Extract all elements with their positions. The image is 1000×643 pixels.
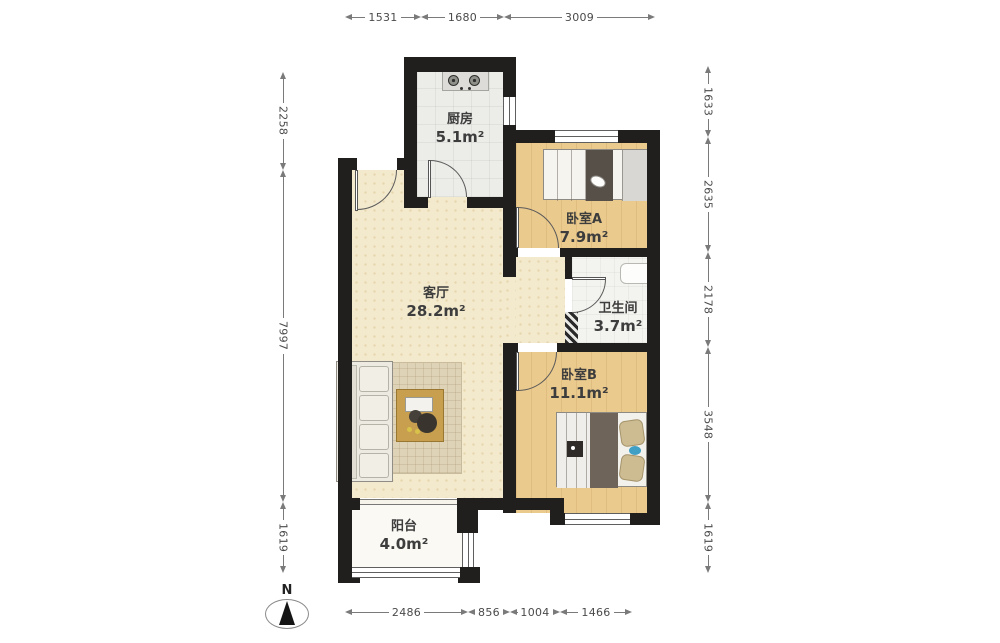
bathroom-door-leaf	[572, 277, 606, 280]
dimension-top-1: 1531	[345, 10, 421, 24]
coffee-table	[396, 389, 444, 442]
room-label-bedroom-b: 卧室B 11.1m²	[522, 368, 636, 404]
dimension-left-1: 2258	[276, 72, 290, 170]
dimension-bottom-2: 856	[468, 605, 510, 619]
wall	[338, 498, 360, 510]
bedroom-a-area: 7.9m²	[527, 228, 641, 248]
wall	[560, 248, 660, 257]
dimension-value: 2486	[389, 607, 424, 618]
room-label-living-room: 客厅 28.2m²	[378, 286, 494, 322]
living-room-area: 28.2m²	[378, 302, 494, 322]
dimension-right-1: 1633	[701, 66, 715, 137]
wall	[457, 498, 478, 533]
bedroom-b-name: 卧室B	[522, 368, 636, 384]
wall	[467, 197, 516, 208]
bedroom-a-name: 卧室A	[527, 212, 641, 228]
bedroom-b-door-leaf	[516, 352, 519, 391]
bed-sheet	[544, 150, 586, 201]
room-label-bedroom-a: 卧室A 7.9m²	[527, 212, 641, 248]
wall	[458, 567, 480, 583]
compass-ellipse	[265, 599, 309, 629]
dimension-value: 1633	[703, 84, 714, 119]
bedroom-a-door-leaf	[516, 207, 519, 248]
dimension-left-2: 7997	[276, 170, 290, 502]
wardrobe-handle	[567, 441, 583, 457]
dimension-right-5: 1619	[701, 502, 715, 573]
dimension-value: 856	[475, 607, 503, 618]
burner	[469, 75, 480, 86]
dimension-right-2: 2635	[701, 137, 715, 252]
bed-bedroom-b	[556, 412, 647, 487]
north-label: N	[265, 584, 309, 597]
dimension-top-3: 3009	[504, 10, 655, 24]
window-bedroom-b	[565, 513, 630, 525]
dimension-value: 1531	[365, 12, 400, 23]
floor-plan: 厨房 5.1m² 卧室A 7.9m² 客厅 28.2m² 卫生间 3.7m² 卧…	[0, 0, 1000, 643]
kitchen-door-leaf	[428, 160, 431, 198]
bed-pillow	[618, 453, 645, 482]
dimension-right-3: 2178	[701, 252, 715, 347]
kettle	[417, 413, 437, 433]
dimension-bottom-4: 1466	[560, 605, 632, 619]
bed-bedroom-a	[543, 149, 647, 200]
bed-pillow	[618, 418, 645, 447]
dimension-value: 1466	[578, 607, 613, 618]
balcony-name: 阳台	[354, 519, 454, 535]
wall	[630, 513, 660, 525]
wall	[404, 57, 516, 72]
dimension-value: 2258	[278, 103, 289, 138]
dimension-value: 7997	[278, 318, 289, 353]
compass: N	[265, 584, 309, 629]
corridor-floor	[516, 257, 565, 343]
living-room-name: 客厅	[378, 286, 494, 302]
wall	[503, 248, 516, 277]
dimension-value: 3548	[703, 407, 714, 442]
cup	[415, 429, 420, 434]
window-bedroom-a	[555, 130, 618, 143]
sofa-cushion	[359, 424, 389, 450]
stove	[442, 71, 489, 91]
wall	[557, 343, 660, 352]
dimension-right-4: 3548	[701, 347, 715, 502]
dimension-value: 2635	[703, 177, 714, 212]
wall	[503, 72, 516, 97]
bedroom-b-area: 11.1m²	[522, 384, 636, 404]
entry-door-leaf	[355, 170, 358, 211]
dimension-top-2: 1680	[421, 10, 504, 24]
burner	[448, 75, 459, 86]
bed-decor	[629, 446, 641, 455]
kitchen-name: 厨房	[408, 112, 512, 128]
wall	[338, 158, 352, 510]
dimension-value: 1619	[703, 520, 714, 555]
stove-knob	[460, 87, 463, 90]
room-label-balcony: 阳台 4.0m²	[354, 519, 454, 555]
bathroom-area: 3.7m²	[574, 317, 662, 337]
window-balcony-bottom	[352, 567, 460, 578]
sofa-cushion	[359, 366, 389, 392]
wall	[550, 513, 565, 525]
wardrobe-knob	[571, 446, 575, 450]
dimension-value: 3009	[562, 12, 597, 23]
dimension-bottom-3: 1004	[510, 605, 560, 619]
corridor-opening-floor	[503, 277, 516, 343]
dimension-value: 1680	[445, 12, 480, 23]
room-label-kitchen: 厨房 5.1m²	[408, 112, 512, 148]
table-tray	[405, 397, 433, 412]
dimension-left-3: 1619	[276, 502, 290, 573]
north-arrow-icon	[279, 601, 295, 625]
dimension-bottom-1: 2486	[345, 605, 468, 619]
bathroom-name: 卫生间	[574, 301, 662, 317]
stove-knob	[468, 87, 471, 90]
wall	[565, 257, 572, 279]
dimension-value: 1619	[278, 520, 289, 555]
wall	[404, 197, 428, 208]
cup	[407, 427, 412, 432]
kitchen-area: 5.1m²	[408, 128, 512, 148]
dimension-value: 1004	[517, 607, 552, 618]
dimension-value: 2178	[703, 282, 714, 317]
bed-blanket	[590, 413, 618, 488]
balcony-area: 4.0m²	[354, 535, 454, 555]
sofa-cushion	[359, 395, 389, 421]
wall	[503, 343, 516, 513]
balcony-sliding-door	[360, 499, 457, 505]
window-balcony-right	[462, 533, 474, 567]
room-label-bathroom: 卫生间 3.7m²	[574, 301, 662, 337]
bed-headboard	[622, 150, 648, 201]
sofa-cushion	[359, 453, 389, 478]
wall	[338, 158, 357, 170]
